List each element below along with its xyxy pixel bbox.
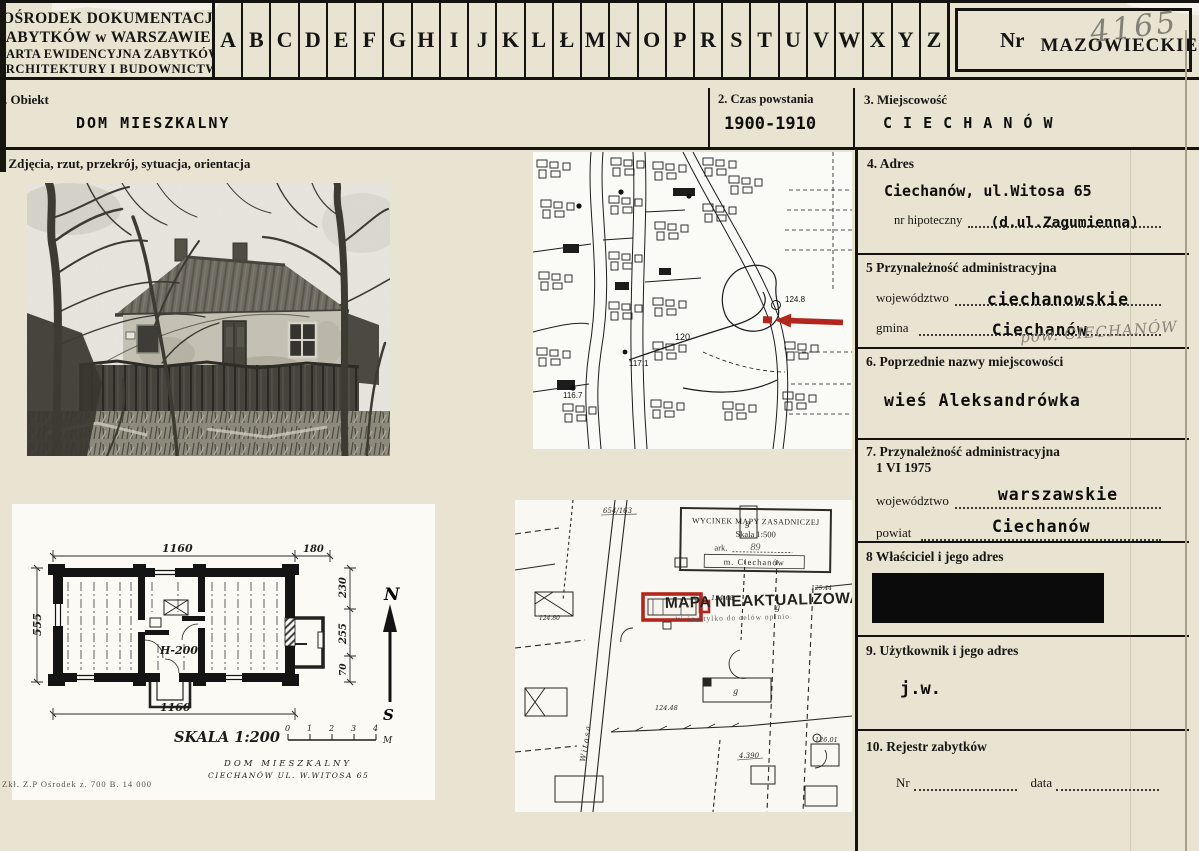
alphabet-index: A B C D E F G H I J K L Ł M N O P R S T …: [215, 3, 947, 77]
alphabet-letter: I: [439, 3, 467, 77]
alphabet-letter: W: [834, 3, 862, 77]
alphabet-letter: E: [326, 3, 354, 77]
spot-height-116: 116.7: [563, 391, 583, 400]
spot-n6: 124.80: [539, 615, 560, 622]
field-obiekt: . Obiekt DOM MIESZKALNY: [0, 88, 710, 147]
paper-crease: [1130, 150, 1131, 851]
czas-value: 1900-1910: [724, 114, 816, 134]
alphabet-letter: F: [354, 3, 382, 77]
scale-tick: 0: [285, 724, 290, 733]
alphabet-letter: R: [693, 3, 721, 77]
field-czas-powstania: 2. Czas powstania 1900-1910: [710, 88, 855, 147]
adres-label: 4. Adres: [867, 156, 914, 172]
plan-caption-1: DOM MIESZKALNY: [223, 759, 352, 769]
print-edition-note: Zkł. Z.P Ośrodek z. 700 B. 14 000: [2, 779, 152, 789]
alphabet-letter: B: [241, 3, 269, 77]
scale-tick: 2: [328, 724, 334, 733]
hip-row: nr hipoteczny (d.ul.Zagumienna): [894, 210, 1161, 228]
scale-unit: M: [382, 736, 393, 746]
object-row: . Obiekt DOM MIESZKALNY 2. Czas powstani…: [0, 88, 1199, 150]
building-use-g3: g: [775, 603, 780, 612]
alphabet-letter: D: [298, 3, 326, 77]
rejestr-label: 10. Rejestr zabytków: [866, 739, 987, 755]
wojewodztwo-1975-row: województwo warszawskie: [876, 488, 1161, 509]
dim-right-1: 230: [338, 577, 349, 599]
dim-bottom: 1160: [160, 701, 191, 714]
stamp-town: m. Ciechanów: [724, 557, 785, 568]
spot-n1: 124.68: [711, 594, 734, 602]
stamp-sheet-label: ark.: [714, 542, 727, 552]
czas-label: 2. Czas powstania: [718, 92, 814, 107]
wlasciciel-label: 8 Właściciel i jego adres: [866, 549, 1003, 565]
header-strip: OŚRODEK DOKUMENTACJI ZABYTKÓW w WARSZAWI…: [0, 0, 1199, 80]
wojewodztwo-row: województwo ciechanowskie: [876, 285, 1161, 306]
obiekt-value: DOM MIESZKALNY: [76, 114, 230, 132]
rejestr-nr-label: Nr: [896, 775, 910, 791]
alphabet-letter: M: [580, 3, 608, 77]
uzytkownik-label: 9. Użytkownik i jego adres: [866, 643, 1018, 659]
poprzednie-label: 6. Poprzednie nazwy miejscowości: [866, 354, 1063, 370]
institution-line3: KARTA EWIDENCYJNA ZABYTKÓW: [0, 47, 212, 62]
powiat-label: powiat: [876, 525, 911, 541]
poprzednie-value: wieś Aleksandrówka: [884, 391, 1081, 410]
dim-right-3: 70: [339, 663, 349, 676]
gmina-label: gmina: [876, 320, 909, 336]
miejscowosc-value: C I E C H A N Ó W: [883, 114, 1054, 132]
field-uzytkownik: 9. Użytkownik i jego adres j.w.: [858, 637, 1189, 731]
wojewodztwo-1975-label: województwo: [876, 493, 949, 509]
redaction-box: [872, 573, 1104, 623]
hip-value: (d.ul.Zagumienna): [990, 215, 1138, 231]
alphabet-letter: Z: [919, 3, 947, 77]
dim-top-right: 180: [303, 544, 324, 555]
city-map: 120 117.1 116.7 124.8: [533, 152, 852, 449]
wojewodztwo-1975-value: warszawskie: [998, 485, 1118, 504]
alphabet-letter: C: [269, 3, 297, 77]
alphabet-letter: X: [862, 3, 890, 77]
alphabet-letter: S: [721, 3, 749, 77]
dim-right-2: 255: [338, 623, 349, 645]
rejestr-row: Nr data: [896, 775, 1159, 791]
building-use-g1: g: [745, 519, 750, 528]
wojewodztwo-label: województwo: [876, 290, 949, 306]
scale-tick: 4: [372, 724, 378, 733]
alphabet-letter: A: [215, 3, 241, 77]
spot-height-117: 117.1: [629, 359, 649, 368]
field-przynaleznosc-adm: 5 Przynależność administracyjna wojewódz…: [858, 255, 1189, 349]
stamp-title: WYCINEK MAPY ZASADNICZEJ: [692, 516, 820, 527]
institution-block: OŚRODEK DOKUMENTACJI ZABYTKÓW w WARSZAWI…: [0, 3, 215, 77]
north-label: N: [383, 585, 401, 605]
obiekt-label: . Obiekt: [4, 92, 49, 108]
field-wlasciciel: 8 Właściciel i jego adres: [858, 543, 1189, 637]
alphabet-letter: N: [608, 3, 636, 77]
stamp-scale: Skala 1:500: [735, 529, 776, 540]
card-right-edge: [1185, 30, 1187, 851]
dim-left: 555: [31, 613, 44, 636]
cadastral-map: WYCINEK MAPY ZASADNICZEJ Skala 1:500 ark…: [515, 500, 852, 812]
building-use-g2: g: [733, 687, 738, 696]
hip-label: nr hipoteczny: [894, 213, 962, 228]
alphabet-letter: L: [524, 3, 552, 77]
spot-n3: 126.01: [815, 736, 838, 744]
nr-label: Nr: [1000, 28, 1025, 53]
powiat-row: powiat Ciechanów: [876, 520, 1161, 541]
house-photograph: [27, 183, 390, 456]
alphabet-letter: O: [637, 3, 665, 77]
powiat-value: Ciechanów: [992, 517, 1090, 536]
alphabet-letter: H: [411, 3, 439, 77]
rejestr-data-label: data: [1031, 775, 1053, 791]
dim-center-height: H-200: [159, 644, 198, 657]
floor-plan: 1160 180 555 230 255 70 H-200 1160 N S S…: [12, 504, 435, 800]
south-label: S: [383, 706, 394, 724]
institution-line1: OŚRODEK DOKUMENTACJI: [2, 10, 212, 29]
contour-label-120: 120: [675, 332, 690, 342]
admin1975-label: 7. Przynależność administracyjna: [866, 444, 1060, 460]
plan-caption-2: CIECHANÓW UL. W.WITOSA 65: [208, 771, 369, 780]
alphabet-letter: T: [749, 3, 777, 77]
field-adres: 4. Adres Ciechanów, ul.Witosa 65 nr hipo…: [858, 150, 1189, 255]
field-poprzednie-nazwy: 6. Poprzednie nazwy miejscowości wieś Al…: [858, 349, 1189, 440]
admin1975-date: 1 VI 1975: [876, 460, 931, 476]
field-miejscowosc: 3. Miejscowość C I E C H A N Ó W: [855, 88, 1199, 147]
photo-grain: [27, 183, 390, 456]
alphabet-letter: U: [778, 3, 806, 77]
spot-height-124: 124.8: [785, 295, 806, 304]
spot-n5: 125.44: [811, 585, 832, 592]
scale-label: SKALA 1:200: [174, 729, 280, 746]
dim-top: 1160: [162, 542, 193, 555]
alphabet-letter: G: [382, 3, 410, 77]
spot-n2: 124.48: [655, 704, 678, 712]
alphabet-letter: K: [495, 3, 523, 77]
institution-line4: ARCHITEKTURY I BUDOWNICTWA: [0, 62, 212, 77]
wojewodztwo-value: ciechanowskie: [987, 290, 1129, 309]
institution-line2: ZABYTKÓW w WARSZAWIE: [0, 29, 212, 48]
uzytkownik-value: j.w.: [900, 679, 941, 699]
field-przynaleznosc-1975: 7. Przynależność administracyjna 1 VI 19…: [858, 440, 1189, 543]
admin-label: 5 Przynależność administracyjna: [866, 260, 1056, 276]
stamp-sheet-number: 89: [750, 542, 760, 553]
alphabet-letter: V: [806, 3, 834, 77]
right-field-column: 4. Adres Ciechanów, ul.Witosa 65 nr hipo…: [855, 150, 1199, 851]
alphabet-letter: P: [665, 3, 693, 77]
scale-tick: 1: [307, 724, 312, 733]
field-rejestr: 10. Rejestr zabytków Nr data: [858, 731, 1189, 851]
parcel-number: 654/163: [603, 507, 633, 515]
heritage-record-card: OŚRODEK DOKUMENTACJI ZABYTKÓW w WARSZAWI…: [0, 0, 1199, 851]
alphabet-letter: J: [467, 3, 495, 77]
scale-tick: 3: [351, 724, 356, 733]
miejscowosc-label: 3. Miejscowość: [864, 92, 947, 108]
alphabet-letter: Y: [891, 3, 919, 77]
alphabet-letter: Ł: [552, 3, 580, 77]
adres-value: Ciechanów, ul.Witosa 65: [884, 182, 1092, 200]
media-section-label: . Zdjęcia, rzut, przekrój, sytuacja, ori…: [2, 156, 250, 172]
